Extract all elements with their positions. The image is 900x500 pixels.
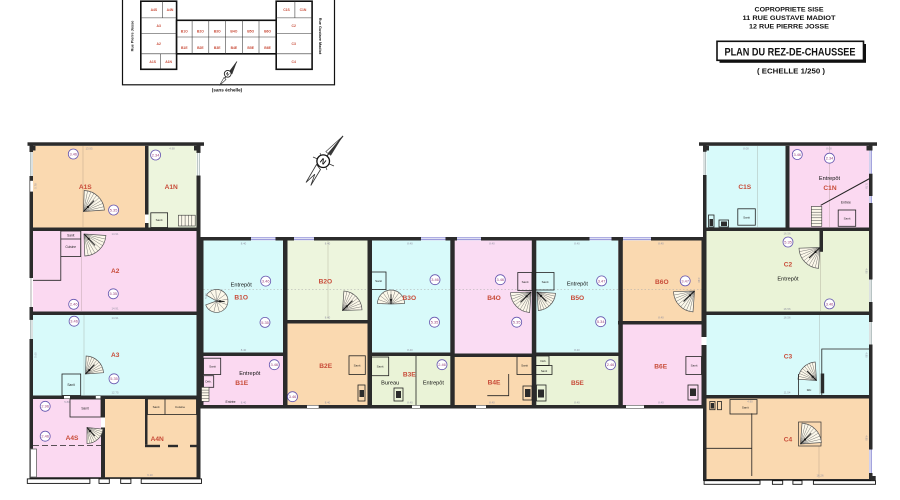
svg-text:B5O: B5O: [247, 29, 254, 33]
svg-text:B2E: B2E: [319, 363, 332, 370]
svg-text:8.40: 8.40: [574, 348, 580, 352]
svg-text:Sanit: Sanit: [542, 280, 549, 284]
svg-text:8.40: 8.40: [489, 242, 495, 246]
svg-text:8.40: 8.40: [241, 401, 247, 405]
svg-text:2.46: 2.46: [607, 362, 615, 367]
svg-text:Sanit: Sanit: [156, 218, 163, 222]
svg-text:A3: A3: [111, 352, 120, 359]
svg-text:8.40: 8.40: [325, 242, 331, 246]
svg-text:Cuisine: Cuisine: [175, 405, 185, 409]
svg-text:C4: C4: [292, 60, 296, 64]
svg-text:8.40: 8.40: [325, 401, 331, 405]
svg-text:4.90: 4.90: [747, 400, 753, 404]
svg-text:5.78: 5.78: [865, 183, 869, 189]
svg-text:8.40: 8.40: [574, 242, 580, 246]
svg-text:3.46: 3.46: [289, 394, 297, 399]
svg-text:Entrepôt: Entrepôt: [567, 281, 589, 287]
svg-text:8.08: 8.08: [743, 147, 749, 151]
svg-text:16.56: 16.56: [784, 232, 791, 236]
svg-text:14.91: 14.91: [112, 232, 119, 236]
svg-text:8.40: 8.40: [658, 242, 664, 246]
svg-text:B4O: B4O: [230, 29, 237, 33]
svg-text:5.35: 5.35: [431, 320, 439, 325]
svg-text:A4S: A4S: [151, 8, 158, 12]
svg-text:2.34: 2.34: [152, 152, 160, 157]
svg-text:(sans échelle): (sans échelle): [212, 88, 243, 93]
svg-text:2.46: 2.46: [438, 362, 446, 367]
svg-text:5.34: 5.34: [597, 319, 605, 324]
svg-text:B1O: B1O: [234, 295, 248, 302]
svg-text:3.46: 3.46: [70, 319, 78, 324]
svg-text:A1S: A1S: [149, 60, 156, 64]
svg-text:5.35: 5.35: [513, 320, 521, 325]
svg-text:Sanit: Sanit: [541, 369, 548, 373]
svg-text:Sanit: Sanit: [153, 405, 160, 409]
svg-text:B6E: B6E: [654, 364, 667, 371]
svg-text:4.90: 4.90: [697, 277, 701, 283]
svg-text:Sanit: Sanit: [354, 364, 361, 368]
svg-text:13.95: 13.95: [86, 147, 93, 151]
svg-text:Sanit: Sanit: [81, 407, 88, 411]
svg-text:Rue Gustave Madiot: Rue Gustave Madiot: [318, 18, 322, 55]
svg-text:8.40: 8.40: [658, 401, 664, 405]
svg-text:5.80: 5.80: [64, 400, 70, 404]
svg-text:8.40: 8.40: [241, 242, 247, 246]
svg-text:A4N: A4N: [167, 8, 174, 12]
svg-text:8.40: 8.40: [574, 401, 580, 405]
svg-text:4.90: 4.90: [865, 268, 869, 274]
svg-text:B3O: B3O: [214, 29, 221, 33]
svg-text:Entrepôt: Entrepôt: [231, 282, 253, 288]
svg-text:16.56: 16.56: [784, 316, 791, 320]
svg-text:Sanit: Sanit: [743, 216, 750, 220]
svg-text:B6O: B6O: [264, 29, 271, 33]
svg-text:Sanit: Sanit: [691, 364, 698, 368]
svg-text:8.40: 8.40: [407, 242, 413, 246]
svg-text:A4N: A4N: [151, 436, 164, 443]
svg-text:4.98: 4.98: [169, 147, 175, 151]
svg-text:3.47: 3.47: [681, 278, 689, 283]
svg-text:A3: A3: [157, 24, 161, 28]
svg-text:Déb.: Déb.: [541, 359, 547, 363]
svg-text:14.91: 14.91: [112, 316, 119, 320]
svg-text:5.35: 5.35: [110, 291, 118, 296]
svg-text:C3: C3: [292, 42, 296, 46]
svg-text:4.90: 4.90: [865, 352, 869, 358]
svg-text:11 RUE GUSTAVE MADIOT: 11 RUE GUSTAVE MADIOT: [743, 15, 836, 22]
svg-text:Déb.: Déb.: [205, 380, 212, 384]
svg-text:Sanit: Sanit: [67, 383, 74, 387]
svg-text:11.54: 11.54: [784, 391, 791, 395]
svg-text:5.35: 5.35: [110, 376, 118, 381]
svg-text:Sanit: Sanit: [375, 279, 382, 283]
svg-text:B2O: B2O: [197, 29, 204, 33]
svg-text:Bureau: Bureau: [381, 380, 399, 386]
svg-text:3.46: 3.46: [431, 277, 439, 282]
svg-text:( ECHELLE 1/250 ): ( ECHELLE 1/250 ): [757, 67, 826, 76]
svg-text:Sanit: Sanit: [522, 280, 529, 284]
svg-text:16.26: 16.26: [817, 474, 824, 478]
svg-text:A1N: A1N: [165, 184, 178, 191]
svg-text:PLAN DU REZ-DE-CHAUSSEE: PLAN DU REZ-DE-CHAUSSEE: [725, 46, 856, 58]
svg-text:A4S: A4S: [66, 435, 79, 442]
svg-text:B5E: B5E: [247, 46, 254, 50]
svg-text:5.35: 5.35: [110, 207, 118, 212]
svg-text:A1S: A1S: [79, 184, 92, 191]
svg-text:Sanit: Sanit: [844, 217, 851, 221]
svg-text:3.46: 3.46: [497, 277, 505, 282]
svg-text:B5O: B5O: [571, 295, 585, 302]
svg-text:C4: C4: [784, 436, 793, 443]
svg-text:B1E: B1E: [235, 380, 248, 387]
svg-text:Entrepôt: Entrepôt: [423, 380, 445, 386]
svg-text:B4E: B4E: [488, 380, 501, 387]
svg-text:A2: A2: [111, 268, 120, 275]
svg-text:14.91: 14.91: [112, 307, 119, 311]
svg-text:B6O: B6O: [655, 279, 669, 286]
svg-text:Sanit: Sanit: [742, 406, 749, 410]
svg-text:2.46: 2.46: [41, 434, 49, 439]
svg-text:C2: C2: [784, 262, 793, 269]
svg-text:C2: C2: [292, 24, 296, 28]
svg-text:8.40: 8.40: [407, 401, 413, 405]
svg-text:A1N: A1N: [165, 60, 172, 64]
svg-text:Sanit: Sanit: [377, 365, 384, 369]
svg-text:C1S: C1S: [738, 184, 751, 191]
svg-text:B1O: B1O: [181, 29, 188, 33]
svg-text:5.60: 5.60: [34, 352, 38, 358]
svg-text:3.47: 3.47: [598, 278, 606, 283]
svg-text:C1S: C1S: [283, 8, 290, 12]
svg-text:3.46: 3.46: [70, 151, 78, 156]
svg-text:C3: C3: [784, 353, 793, 360]
svg-text:A2: A2: [157, 42, 161, 46]
svg-text:8.40: 8.40: [489, 401, 495, 405]
svg-text:B4O: B4O: [487, 295, 501, 302]
svg-text:8.40: 8.40: [407, 348, 413, 352]
svg-text:5.35: 5.35: [261, 320, 269, 325]
svg-text:B3O: B3O: [403, 295, 417, 302]
svg-text:Sanit: Sanit: [67, 234, 74, 238]
svg-text:12.75: 12.75: [112, 391, 119, 395]
svg-text:Entrepôt: Entrepôt: [777, 276, 799, 282]
svg-text:8.08: 8.08: [826, 147, 832, 151]
svg-text:6.10: 6.10: [147, 473, 153, 477]
svg-text:COPROPRIETE SISE: COPROPRIETE SISE: [755, 7, 825, 14]
svg-text:B1E: B1E: [181, 46, 188, 50]
svg-text:Entrepôt: Entrepôt: [239, 371, 261, 377]
svg-text:8.40: 8.40: [241, 348, 247, 352]
svg-text:5.78: 5.78: [34, 183, 38, 189]
svg-text:Entrée: Entrée: [841, 200, 851, 204]
svg-text:Rue Pierre Josse: Rue Pierre Josse: [131, 21, 135, 52]
svg-text:C1N: C1N: [300, 8, 307, 12]
svg-text:8.40: 8.40: [658, 316, 664, 320]
svg-text:3.46: 3.46: [794, 152, 802, 157]
svg-text:Sanit: Sanit: [209, 365, 216, 369]
svg-text:2.34: 2.34: [826, 156, 834, 161]
svg-text:B3E: B3E: [214, 46, 221, 50]
svg-text:3.46: 3.46: [262, 279, 270, 284]
svg-text:B2E: B2E: [197, 46, 204, 50]
svg-text:Sanit: Sanit: [521, 364, 528, 368]
svg-text:4.90: 4.90: [865, 435, 869, 441]
svg-text:C1N: C1N: [823, 185, 836, 192]
svg-text:Rdc: Rdc: [807, 388, 812, 392]
svg-text:16.56: 16.56: [784, 307, 791, 311]
svg-text:8.40: 8.40: [325, 316, 331, 320]
svg-text:5.35: 5.35: [784, 239, 792, 244]
svg-text:B3E: B3E: [403, 371, 416, 378]
svg-text:B2O: B2O: [319, 279, 333, 286]
svg-text:3.46: 3.46: [271, 362, 279, 367]
svg-text:B6E: B6E: [264, 46, 271, 50]
svg-text:12 RUE PIERRE JOSSE: 12 RUE PIERRE JOSSE: [749, 23, 830, 30]
svg-text:Cuisine: Cuisine: [65, 245, 76, 249]
svg-text:2.96: 2.96: [41, 404, 49, 409]
svg-text:2.46: 2.46: [70, 302, 78, 307]
svg-text:B5E: B5E: [571, 380, 584, 387]
svg-text:Entrée: Entrée: [226, 400, 236, 404]
svg-text:B4E: B4E: [231, 46, 238, 50]
svg-text:Entrepôt: Entrepôt: [819, 176, 841, 182]
svg-text:3.46: 3.46: [826, 301, 834, 306]
svg-text:5.60: 5.60: [204, 293, 208, 299]
